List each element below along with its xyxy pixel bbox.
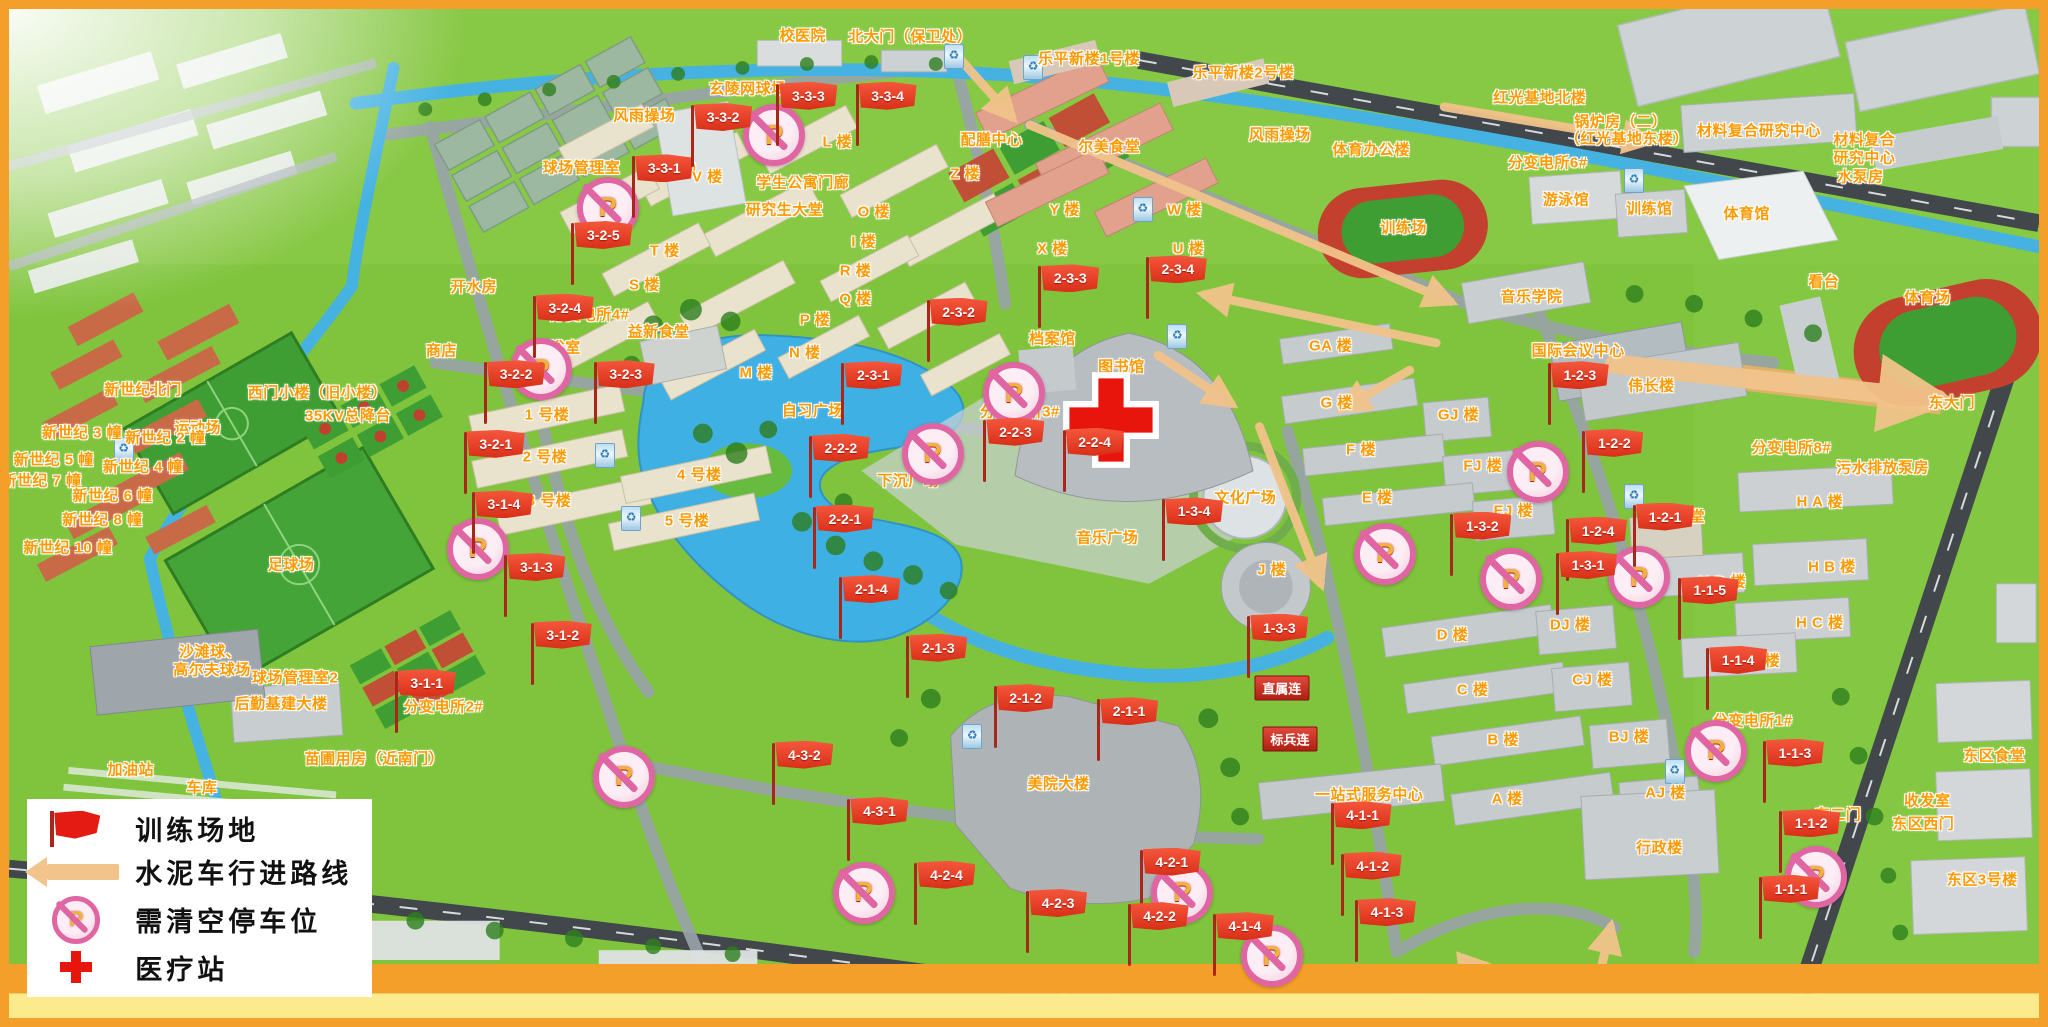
training-flag-3-1-2[interactable]: 3-1-2 xyxy=(531,621,593,687)
legend-label: 医疗站 xyxy=(135,948,228,987)
campus-map: 校医院北大门（保卫处）乐平新楼1号楼乐平新楼2号楼红光基地北楼锅炉房（二）（红光… xyxy=(0,0,2048,1027)
map-label: C 楼 xyxy=(1457,679,1489,700)
recycle-kiosk-icon: ♻ xyxy=(621,506,641,531)
training-flag-2-2-4[interactable]: 2-2-4 xyxy=(1063,428,1125,494)
map-label: 训练场 xyxy=(1380,216,1427,237)
training-flag-2-2-2[interactable]: 2-2-2 xyxy=(809,434,871,500)
map-label: X 楼 xyxy=(1037,238,1068,259)
map-label: M 楼 xyxy=(739,362,772,383)
training-flag-2-1-2[interactable]: 2-1-2 xyxy=(994,684,1056,750)
legend-row-clear-parking: P 需清空停车位 xyxy=(33,896,366,944)
map-label: 北大门（保卫处） xyxy=(848,26,972,47)
map-label: 训练馆 xyxy=(1626,197,1673,218)
training-flag-4-1-4[interactable]: 4-1-4 xyxy=(1213,912,1275,978)
map-label: 红光基地北楼 xyxy=(1493,86,1586,107)
recycle-kiosk-icon: ♻ xyxy=(1133,197,1153,222)
map-label: 水泵房 xyxy=(1837,166,1884,187)
map-label: 新世纪 3 幢 xyxy=(42,421,122,442)
training-flag-4-3-2[interactable]: 4-3-2 xyxy=(772,741,834,807)
training-flag-1-1-1[interactable]: 1-1-1 xyxy=(1759,875,1821,941)
training-flag-1-1-3[interactable]: 1-1-3 xyxy=(1763,739,1825,805)
map-label: 校医院 xyxy=(779,25,826,46)
unit-sign: 标兵连 xyxy=(1262,726,1317,751)
map-label: D 楼 xyxy=(1437,623,1469,644)
map-label: 35KV总降台 xyxy=(305,404,391,425)
map-label: 国际会议中心 xyxy=(1532,340,1625,361)
recycle-kiosk-icon: ♻ xyxy=(1624,168,1644,193)
map-label: 新世纪 4 幢 xyxy=(103,456,183,477)
map-label: AJ 楼 xyxy=(1645,781,1685,802)
training-flag-3-1-3[interactable]: 3-1-3 xyxy=(504,553,566,619)
training-flag-3-2-5[interactable]: 3-2-5 xyxy=(571,221,633,287)
map-label: 新世纪 8 幢 xyxy=(62,508,142,529)
map-label: 4 号楼 xyxy=(677,464,722,485)
map-label: T 楼 xyxy=(650,240,680,261)
legend-row-training-ground: 训练场地 xyxy=(33,809,366,848)
map-label: R 楼 xyxy=(840,260,872,281)
no-parking-icon[interactable]: P xyxy=(833,862,895,924)
no-parking-icon[interactable]: P xyxy=(593,746,655,808)
map-label: 东区3号楼 xyxy=(1947,868,2018,889)
map-label: O 楼 xyxy=(858,200,890,221)
map-label: 5 号楼 xyxy=(665,509,710,530)
map-label: 足球场 xyxy=(268,553,315,574)
training-flag-2-1-1[interactable]: 2-1-1 xyxy=(1097,697,1159,763)
map-label: GJ 楼 xyxy=(1438,403,1479,424)
training-flag-1-2-1[interactable]: 1-2-1 xyxy=(1633,503,1695,569)
map-label: 档案馆 xyxy=(1029,327,1076,348)
training-flag-1-2-2[interactable]: 1-2-2 xyxy=(1582,429,1644,495)
training-flag-1-2-3[interactable]: 1-2-3 xyxy=(1548,361,1610,427)
training-flag-2-1-3[interactable]: 2-1-3 xyxy=(906,634,968,700)
recycle-kiosk-icon: ♻ xyxy=(1665,759,1685,784)
map-label: 新世纪 5 幢 xyxy=(14,449,94,470)
map-label: 新世纪 2 幢 xyxy=(125,426,205,447)
map-label: CJ 楼 xyxy=(1572,668,1612,689)
legend-label: 水泥车行进路线 xyxy=(135,852,352,891)
training-flag-3-1-1[interactable]: 3-1-1 xyxy=(395,669,457,735)
recycle-kiosk-icon: ♻ xyxy=(962,724,982,749)
map-label: V 楼 xyxy=(692,166,723,187)
map-label: 污水排放泵房 xyxy=(1836,457,1929,478)
arrow-icon xyxy=(33,864,119,880)
training-flag-3-3-3[interactable]: 3-3-3 xyxy=(776,82,838,148)
training-flag-1-1-4[interactable]: 1-1-4 xyxy=(1706,646,1768,712)
map-label: 研究生大堂 xyxy=(746,198,824,219)
map-label: 开水房 xyxy=(451,276,498,297)
training-flag-4-2-2[interactable]: 4-2-2 xyxy=(1128,902,1190,968)
map-label: 看台 xyxy=(1808,271,1839,292)
map-label: 西门小楼（旧小楼） xyxy=(248,382,388,403)
training-flag-2-3-4[interactable]: 2-3-4 xyxy=(1146,255,1208,321)
map-label: S 楼 xyxy=(629,274,660,295)
map-label: J 楼 xyxy=(1257,558,1286,579)
map-label: 2 号楼 xyxy=(523,445,568,466)
training-flag-4-1-3[interactable]: 4-1-3 xyxy=(1355,898,1417,964)
map-label: DJ 楼 xyxy=(1550,614,1590,635)
map-label: F 楼 xyxy=(1346,438,1376,459)
map-label: 新世纪 10 幢 xyxy=(23,536,112,557)
training-flag-1-3-1[interactable]: 1-3-1 xyxy=(1556,551,1618,617)
map-label: 高尔夫球场 xyxy=(173,658,251,679)
no-parking-icon[interactable]: P xyxy=(1685,720,1747,782)
map-label: 自习广场 xyxy=(782,399,844,420)
map-label: 行政楼 xyxy=(1636,837,1683,858)
map-label: 研究中心 xyxy=(1833,147,1895,168)
map-label: 乐平新楼1号楼 xyxy=(1038,48,1140,69)
no-parking-icon[interactable]: P xyxy=(902,423,964,485)
map-label: 东区西门 xyxy=(1892,813,1954,834)
map-label: H C 楼 xyxy=(1796,612,1844,633)
map-label: 后勤基建大楼 xyxy=(235,693,328,714)
map-label: 体育办公楼 xyxy=(1332,139,1410,160)
map-label: Q 楼 xyxy=(839,287,871,308)
training-flag-2-3-2[interactable]: 2-3-2 xyxy=(927,298,989,364)
training-flag-2-3-3[interactable]: 2-3-3 xyxy=(1038,264,1100,330)
map-label: B 楼 xyxy=(1487,728,1519,749)
map-label: P 楼 xyxy=(800,308,830,329)
map-label: I 楼 xyxy=(851,231,876,252)
training-flag-4-2-3[interactable]: 4-2-3 xyxy=(1026,889,1088,955)
training-flag-3-3-2[interactable]: 3-3-2 xyxy=(691,103,753,169)
training-flag-3-1-4[interactable]: 3-1-4 xyxy=(472,490,534,556)
map-label: 风雨操场 xyxy=(1249,124,1311,145)
map-label: 配膳中心 xyxy=(961,129,1023,150)
training-flag-2-3-1[interactable]: 2-3-1 xyxy=(841,361,903,427)
map-label: Y 楼 xyxy=(1049,198,1079,219)
training-flag-1-1-5[interactable]: 1-1-5 xyxy=(1678,576,1740,642)
map-label: 材料复合研究中心 xyxy=(1697,120,1821,141)
training-flag-4-2-4[interactable]: 4-2-4 xyxy=(914,861,976,927)
no-parking-icon[interactable]: P xyxy=(1354,523,1416,585)
map-label: 商店 xyxy=(426,340,457,361)
training-flag-2-2-3[interactable]: 2-2-3 xyxy=(983,418,1045,484)
map-label: H B 楼 xyxy=(1808,555,1856,576)
map-label: 新世纪 6 幢 xyxy=(72,485,152,506)
training-flag-3-2-3[interactable]: 3-2-3 xyxy=(594,360,656,426)
training-flag-1-3-2[interactable]: 1-3-2 xyxy=(1450,512,1512,578)
map-label: 美院大楼 xyxy=(1027,772,1089,793)
map-label: 球场管理室2 xyxy=(252,666,338,687)
training-flag-3-3-1[interactable]: 3-3-1 xyxy=(632,154,694,220)
map-label: A 楼 xyxy=(1492,788,1523,809)
map-label: 苗圃用房（近南门） xyxy=(305,747,445,768)
map-label: 新世纪北门 xyxy=(104,379,182,400)
map-label: 分变电所8# xyxy=(1751,436,1831,457)
map-label: 车库 xyxy=(186,776,217,797)
recycle-kiosk-icon: ♻ xyxy=(944,44,964,69)
map-label: 学生公寓门廊 xyxy=(756,171,849,192)
no-parking-icon: P xyxy=(33,896,119,944)
training-flag-1-3-4[interactable]: 1-3-4 xyxy=(1162,497,1224,563)
map-label: 音乐广场 xyxy=(1076,526,1138,547)
recycle-kiosk-icon: ♻ xyxy=(595,443,615,468)
training-flag-3-2-4[interactable]: 3-2-4 xyxy=(533,294,595,360)
map-label: GA 楼 xyxy=(1309,334,1352,355)
legend-label: 需清空停车位 xyxy=(135,900,321,939)
training-flag-3-3-4[interactable]: 3-3-4 xyxy=(856,82,918,148)
map-label: 加油站 xyxy=(108,758,155,779)
medical-cross-icon xyxy=(33,948,119,986)
map-label: （红光基地东楼） xyxy=(1565,128,1689,149)
map-label: G 楼 xyxy=(1320,391,1352,412)
legend-row-cement-route: 水泥车行进路线 xyxy=(33,852,366,891)
training-flag-3-2-2[interactable]: 3-2-2 xyxy=(484,360,546,426)
map-label: 分变电所6# xyxy=(1508,152,1588,173)
map-label: 收发室 xyxy=(1904,790,1951,811)
training-flag-3-2-1[interactable]: 3-2-1 xyxy=(464,430,526,496)
training-flag-1-3-3[interactable]: 1-3-3 xyxy=(1247,614,1309,680)
map-label: 尔美食堂 xyxy=(1078,136,1140,157)
map-label: 益新食堂 xyxy=(628,320,690,341)
map-label: 玄陵网球场 xyxy=(709,77,787,98)
map-label: H A 楼 xyxy=(1797,491,1843,512)
training-flag-2-1-4[interactable]: 2-1-4 xyxy=(839,575,901,641)
flag-icon xyxy=(33,811,119,847)
map-label: BJ 楼 xyxy=(1609,726,1649,747)
training-flag-2-2-1[interactable]: 2-2-1 xyxy=(813,505,875,571)
no-parking-icon[interactable]: P xyxy=(1507,441,1569,503)
training-flag-1-1-2[interactable]: 1-1-2 xyxy=(1779,809,1841,875)
legend-row-medical-station: 医疗站 xyxy=(33,948,366,987)
map-label: 风雨操场 xyxy=(613,104,675,125)
legend-label: 训练场地 xyxy=(135,809,259,848)
map-label: Z 楼 xyxy=(950,163,980,184)
map-label: 体育馆 xyxy=(1723,202,1770,223)
map-label: N 楼 xyxy=(789,342,821,363)
map-label: FJ 楼 xyxy=(1463,455,1502,476)
map-label: W 楼 xyxy=(1167,198,1202,219)
map-label: 体育场 xyxy=(1904,286,1951,307)
map-label: 东区食堂 xyxy=(1963,744,2025,765)
map-legend: 训练场地 水泥车行进路线 P 需清空停车位 医疗站 xyxy=(27,799,372,997)
training-flag-4-3-1[interactable]: 4-3-1 xyxy=(847,797,909,863)
map-label: 乐平新楼2号楼 xyxy=(1192,61,1294,82)
map-label: 东大门 xyxy=(1928,391,1975,412)
map-label: E 楼 xyxy=(1362,487,1393,508)
no-parking-icon[interactable]: P xyxy=(983,362,1045,424)
map-label: 伟长楼 xyxy=(1628,375,1675,396)
map-label: 游泳馆 xyxy=(1543,188,1590,209)
map-label: 音乐学院 xyxy=(1500,285,1562,306)
map-label: 球场管理室 xyxy=(543,157,621,178)
recycle-kiosk-icon: ♻ xyxy=(1167,324,1187,349)
map-label: 新世纪 7 幢 xyxy=(1,470,81,491)
